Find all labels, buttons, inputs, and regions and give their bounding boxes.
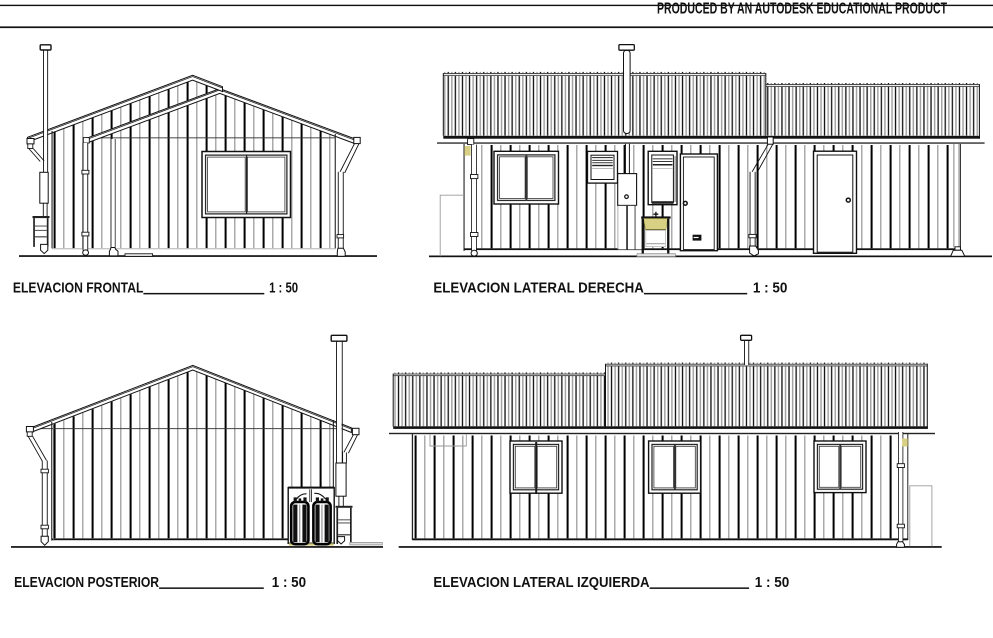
svg-text:1 : 50: 1 : 50 — [753, 279, 788, 296]
svg-text:1 : 50: 1 : 50 — [755, 574, 790, 591]
svg-text:ELEVACION LATERAL IZQUIERDA: ELEVACION LATERAL IZQUIERDA — [433, 574, 649, 591]
svg-text:ELEVACION POSTERIOR: ELEVACION POSTERIOR — [14, 574, 159, 591]
svg-text:ELEVACION LATERAL DERECHA: ELEVACION LATERAL DERECHA — [433, 279, 644, 296]
svg-text:1 : 50: 1 : 50 — [272, 574, 306, 591]
svg-text:PRODUCED BY AN AUTODESK EDUCAT: PRODUCED BY AN AUTODESK EDUCATIONAL PROD… — [657, 1, 947, 18]
svg-text:1 : 50: 1 : 50 — [269, 279, 298, 296]
svg-text:ELEVACION FRONTAL: ELEVACION FRONTAL — [13, 279, 144, 296]
